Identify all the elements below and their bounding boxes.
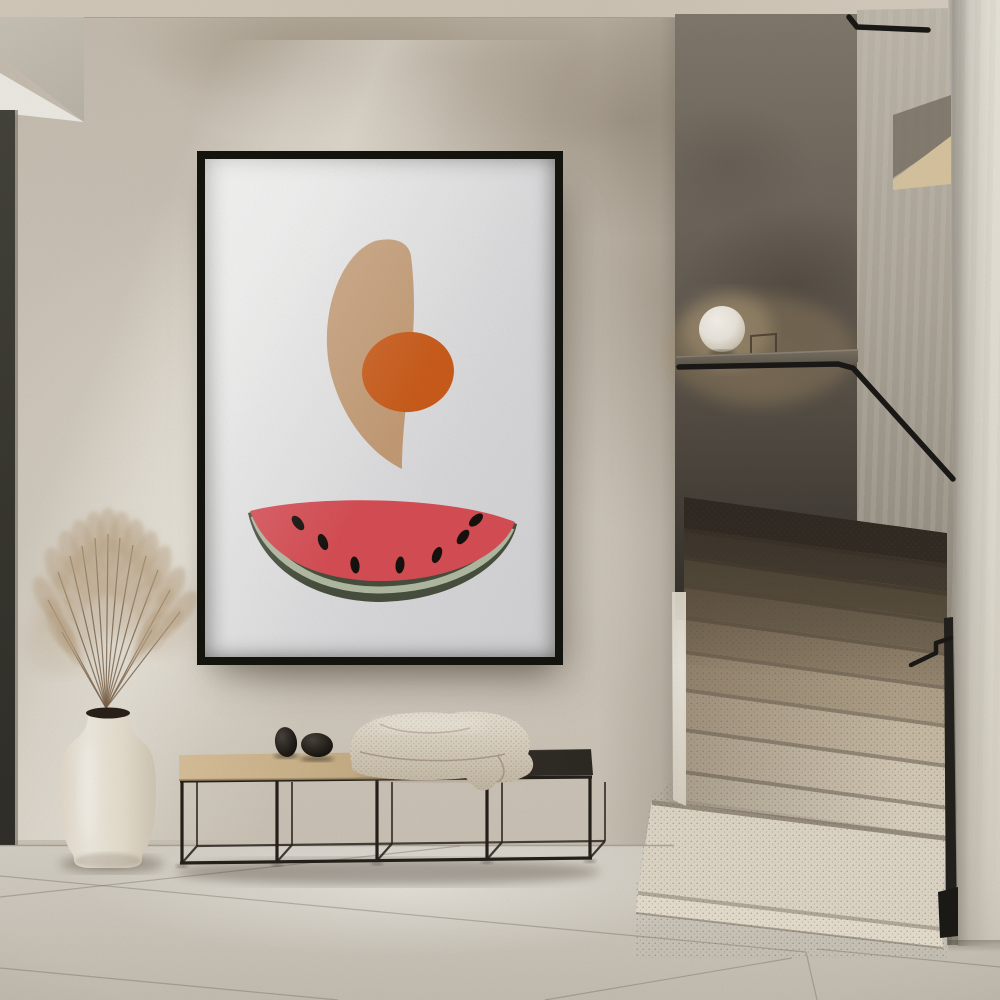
- niche-shelf: [893, 95, 951, 190]
- knit-blanket: [350, 712, 533, 791]
- framed-art-poster: [197, 151, 563, 665]
- upper-handrail: [849, 17, 928, 30]
- art-print: [205, 159, 555, 657]
- interior-scene: [0, 0, 1000, 1000]
- sphere-lamp: [665, 292, 855, 405]
- vase-mouth: [86, 708, 130, 719]
- wall-corner-reveal: [672, 592, 686, 806]
- pampas-grass: [25, 507, 203, 708]
- vase: [60, 708, 164, 874]
- bench: [176, 712, 605, 885]
- glass-glare: [205, 159, 555, 657]
